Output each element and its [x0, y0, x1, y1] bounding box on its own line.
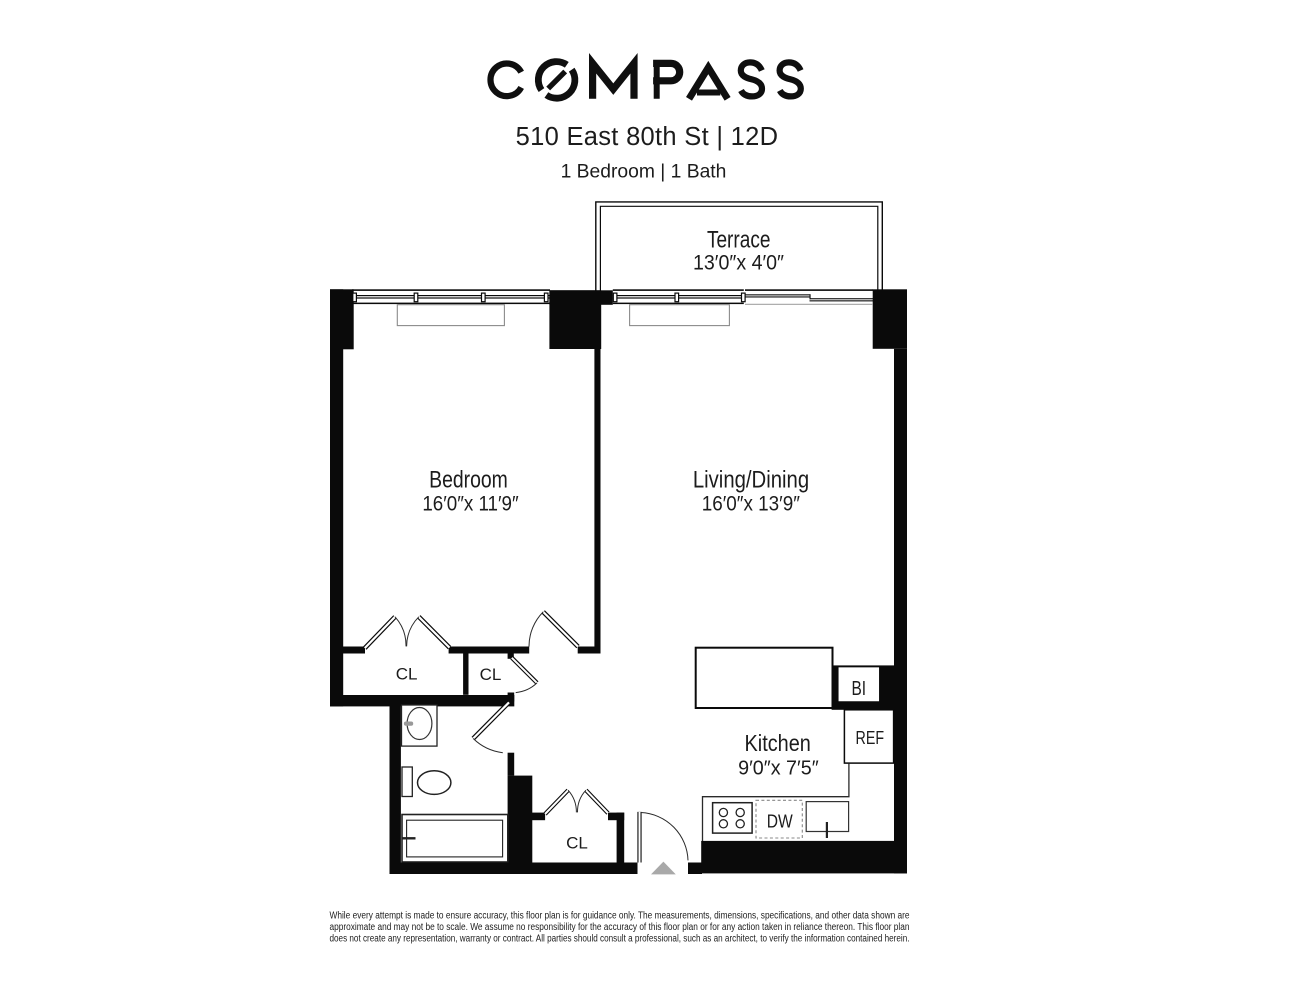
svg-text:does not create any representa: does not create any representation, warr…: [330, 934, 910, 945]
svg-text:Kitchen: Kitchen: [745, 730, 811, 756]
svg-text:16′0″x 11′9″: 16′0″x 11′9″: [422, 493, 519, 516]
svg-text:approximate and may not be to: approximate and may not be to scale. We …: [330, 922, 910, 933]
svg-text:Terrace: Terrace: [707, 227, 771, 254]
svg-text:DW: DW: [767, 811, 793, 832]
svg-text:9′0″x 7′5″: 9′0″x 7′5″: [738, 757, 819, 780]
svg-text:REF: REF: [856, 728, 885, 748]
svg-text:16′0″x 13′9″: 16′0″x 13′9″: [702, 493, 801, 516]
svg-text:1 Bedroom | 1 Bath: 1 Bedroom | 1 Bath: [561, 162, 727, 183]
svg-text:While every attempt is made to: While every attempt is made to ensure ac…: [330, 911, 910, 922]
svg-text:510 East 80th St | 12D: 510 East 80th St | 12D: [516, 123, 779, 151]
svg-text:CL: CL: [566, 834, 588, 853]
svg-text:13′0″x 4′0″: 13′0″x 4′0″: [693, 252, 785, 275]
svg-text:Living/Dining: Living/Dining: [693, 467, 809, 494]
svg-text:CL: CL: [480, 665, 502, 684]
svg-text:CL: CL: [396, 665, 418, 684]
svg-text:Bedroom: Bedroom: [429, 467, 508, 494]
svg-text:BI: BI: [852, 677, 867, 700]
